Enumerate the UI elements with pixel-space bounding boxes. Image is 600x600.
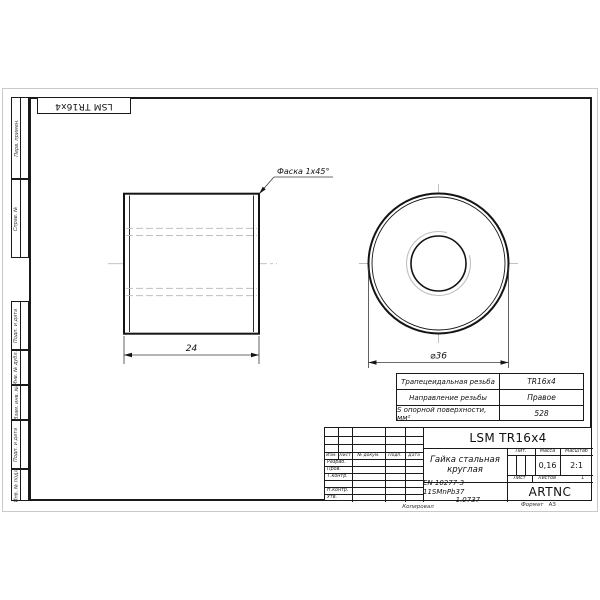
front-view xyxy=(359,184,518,343)
table-row: Направление резьбы Правое xyxy=(397,390,583,406)
param-label: Трапецеидальная резьба xyxy=(397,374,500,389)
drawing-sheet: LSM TR16x4 Перв. примен. Справ. № Подп. … xyxy=(2,88,598,512)
col-header-podp: Подп. xyxy=(385,452,405,459)
row-label-razrab: Разраб. xyxy=(327,460,346,465)
designation-cell: LSM TR16x4 xyxy=(423,428,593,448)
left-strip-cell-vzam-inv: Взам. инв. № xyxy=(11,385,29,420)
scale-header: Масштаб xyxy=(560,448,593,455)
title-block: Изм. Лист № докум. Подп. Дата Разраб. Пр… xyxy=(324,427,592,501)
row-label-prov: Пров. xyxy=(327,467,341,472)
left-strip-label: Справ. № xyxy=(14,206,20,230)
side-view xyxy=(108,194,277,334)
dim-arrow xyxy=(251,353,259,357)
length-dimension: 24 xyxy=(124,336,259,364)
left-strip-cell-inv-podl: Инв. № подл. xyxy=(11,469,29,501)
nut-outline xyxy=(124,194,259,334)
col-header-izm: Изм. xyxy=(325,452,338,459)
diameter-dim-text: ⌀36 xyxy=(430,352,447,362)
row-label-nkontr: Н.контр. xyxy=(327,488,348,493)
sheet-label: Лист xyxy=(507,475,532,482)
left-strip-label: Инв. № дубл. xyxy=(14,350,20,384)
copied-note: Копировал xyxy=(373,502,463,511)
left-strip-cell-podp-data-1: Подп. и дата xyxy=(11,301,29,350)
param-value: Правое xyxy=(500,390,583,405)
param-label: Направление резьбы xyxy=(397,390,500,405)
length-dim-text: 24 xyxy=(186,344,198,354)
col-header-doc: № докум. xyxy=(352,452,385,459)
format-note: Формат A3 xyxy=(521,502,591,511)
chamfer-note-text: Фаска 1x45° xyxy=(277,167,329,176)
format-label: Формат xyxy=(521,502,543,508)
col-header-data: Дата xyxy=(405,452,423,459)
lit-header: Лит. xyxy=(507,448,535,455)
left-strip-cell-perv-primen: Перв. примен. xyxy=(11,97,29,179)
views-svg: Фаска 1x45° 24 xyxy=(101,151,561,381)
left-strip-cell-podp-data-2: Подп. и дата xyxy=(11,420,29,469)
table-row: Трапецеидальная резьба TR16x4 xyxy=(397,374,583,390)
bore-circle xyxy=(411,236,466,291)
mass-header: Масса xyxy=(535,448,560,455)
chamfer-leader: Фаска 1x45° xyxy=(259,167,333,194)
left-strip-label: Подп. и дата xyxy=(14,427,20,461)
format-value: A3 xyxy=(549,502,556,508)
table-row: S опорной поверхности, мм² 528 xyxy=(397,406,583,421)
rotated-designation-text: LSM TR16x4 xyxy=(55,101,113,111)
sheets-label: Листов xyxy=(538,476,556,481)
material-cell: EN 10277-3 11SMnPb37 – 1.0737 xyxy=(423,482,507,502)
left-strip-label: Подп. и дата xyxy=(14,308,20,342)
left-strip-label: Инв. № подл. xyxy=(14,468,20,503)
scale-value: 2:1 xyxy=(560,455,593,475)
mass-value: 0,16 xyxy=(535,455,560,475)
company-cell: ARTNC xyxy=(507,482,593,502)
left-strip-cell-sprav-no: Справ. № xyxy=(11,179,29,258)
row-label-utv: Утв. xyxy=(327,495,337,500)
dim-arrow xyxy=(501,360,509,364)
param-value: 528 xyxy=(500,406,583,421)
param-label: S опорной поверхности, мм² xyxy=(397,406,500,421)
material-line1: EN 10277-3 11SMnPb37 xyxy=(423,479,507,496)
row-label-tkontr: Т.контр. xyxy=(327,474,348,479)
drawing-canvas: LSM TR16x4 Перв. примен. Справ. № Подп. … xyxy=(0,0,600,600)
left-strip-label: Взам. инв. № xyxy=(14,386,20,420)
parameters-table: Трапецеидальная резьба TR16x4 Направлени… xyxy=(396,373,584,421)
dim-arrow xyxy=(369,360,377,364)
col-header-list: Лист xyxy=(338,452,352,459)
rotated-designation-stamp: LSM TR16x4 xyxy=(37,97,131,114)
left-strip-cell-inv-dubl: Инв. № дубл. xyxy=(11,350,29,385)
param-value: TR16x4 xyxy=(500,374,583,389)
part-name-cell: Гайка стальная круглая xyxy=(423,448,507,482)
left-strip-label: Перв. примен. xyxy=(14,119,20,157)
dim-arrow xyxy=(124,353,132,357)
sheets-value: 1 xyxy=(581,476,584,481)
